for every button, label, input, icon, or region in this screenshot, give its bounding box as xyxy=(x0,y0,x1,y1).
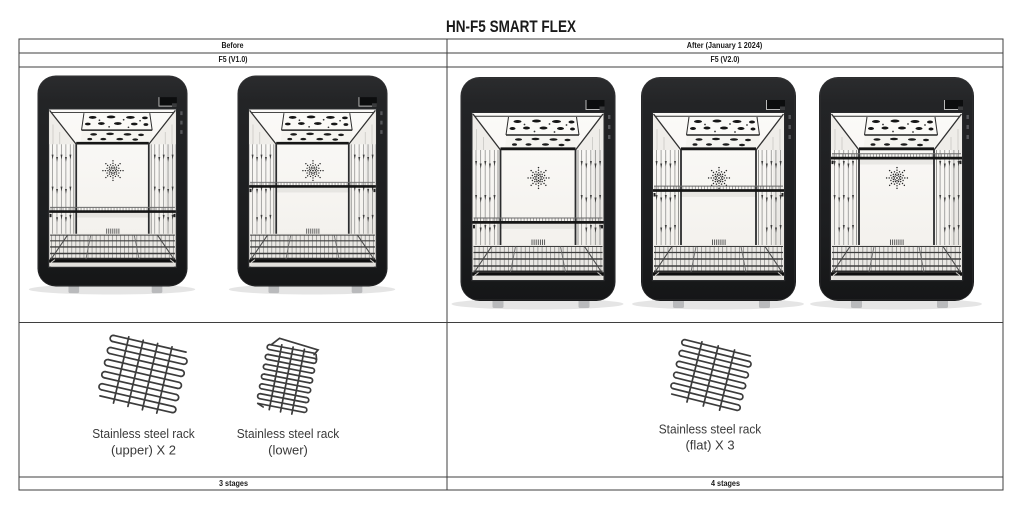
svg-text:After (January 1 2024): After (January 1 2024) xyxy=(687,41,763,50)
svg-text:F5 (V2.0): F5 (V2.0) xyxy=(711,55,740,64)
svg-text:F5 (V1.0): F5 (V1.0) xyxy=(219,55,248,64)
svg-text:Stainless steel rack: Stainless steel rack xyxy=(659,422,762,437)
svg-text:(upper) X 2: (upper) X 2 xyxy=(111,443,176,458)
svg-text:(flat) X 3: (flat) X 3 xyxy=(685,438,734,453)
svg-text:Before: Before xyxy=(222,41,244,50)
svg-text:4 stages: 4 stages xyxy=(711,479,740,488)
svg-text:3 stages: 3 stages xyxy=(219,479,248,488)
svg-text:HN-F5 SMART FLEX: HN-F5 SMART FLEX xyxy=(446,18,576,36)
svg-text:(lower): (lower) xyxy=(268,443,308,458)
svg-text:Stainless steel rack: Stainless steel rack xyxy=(92,426,195,441)
svg-text:Stainless steel rack: Stainless steel rack xyxy=(237,426,340,441)
